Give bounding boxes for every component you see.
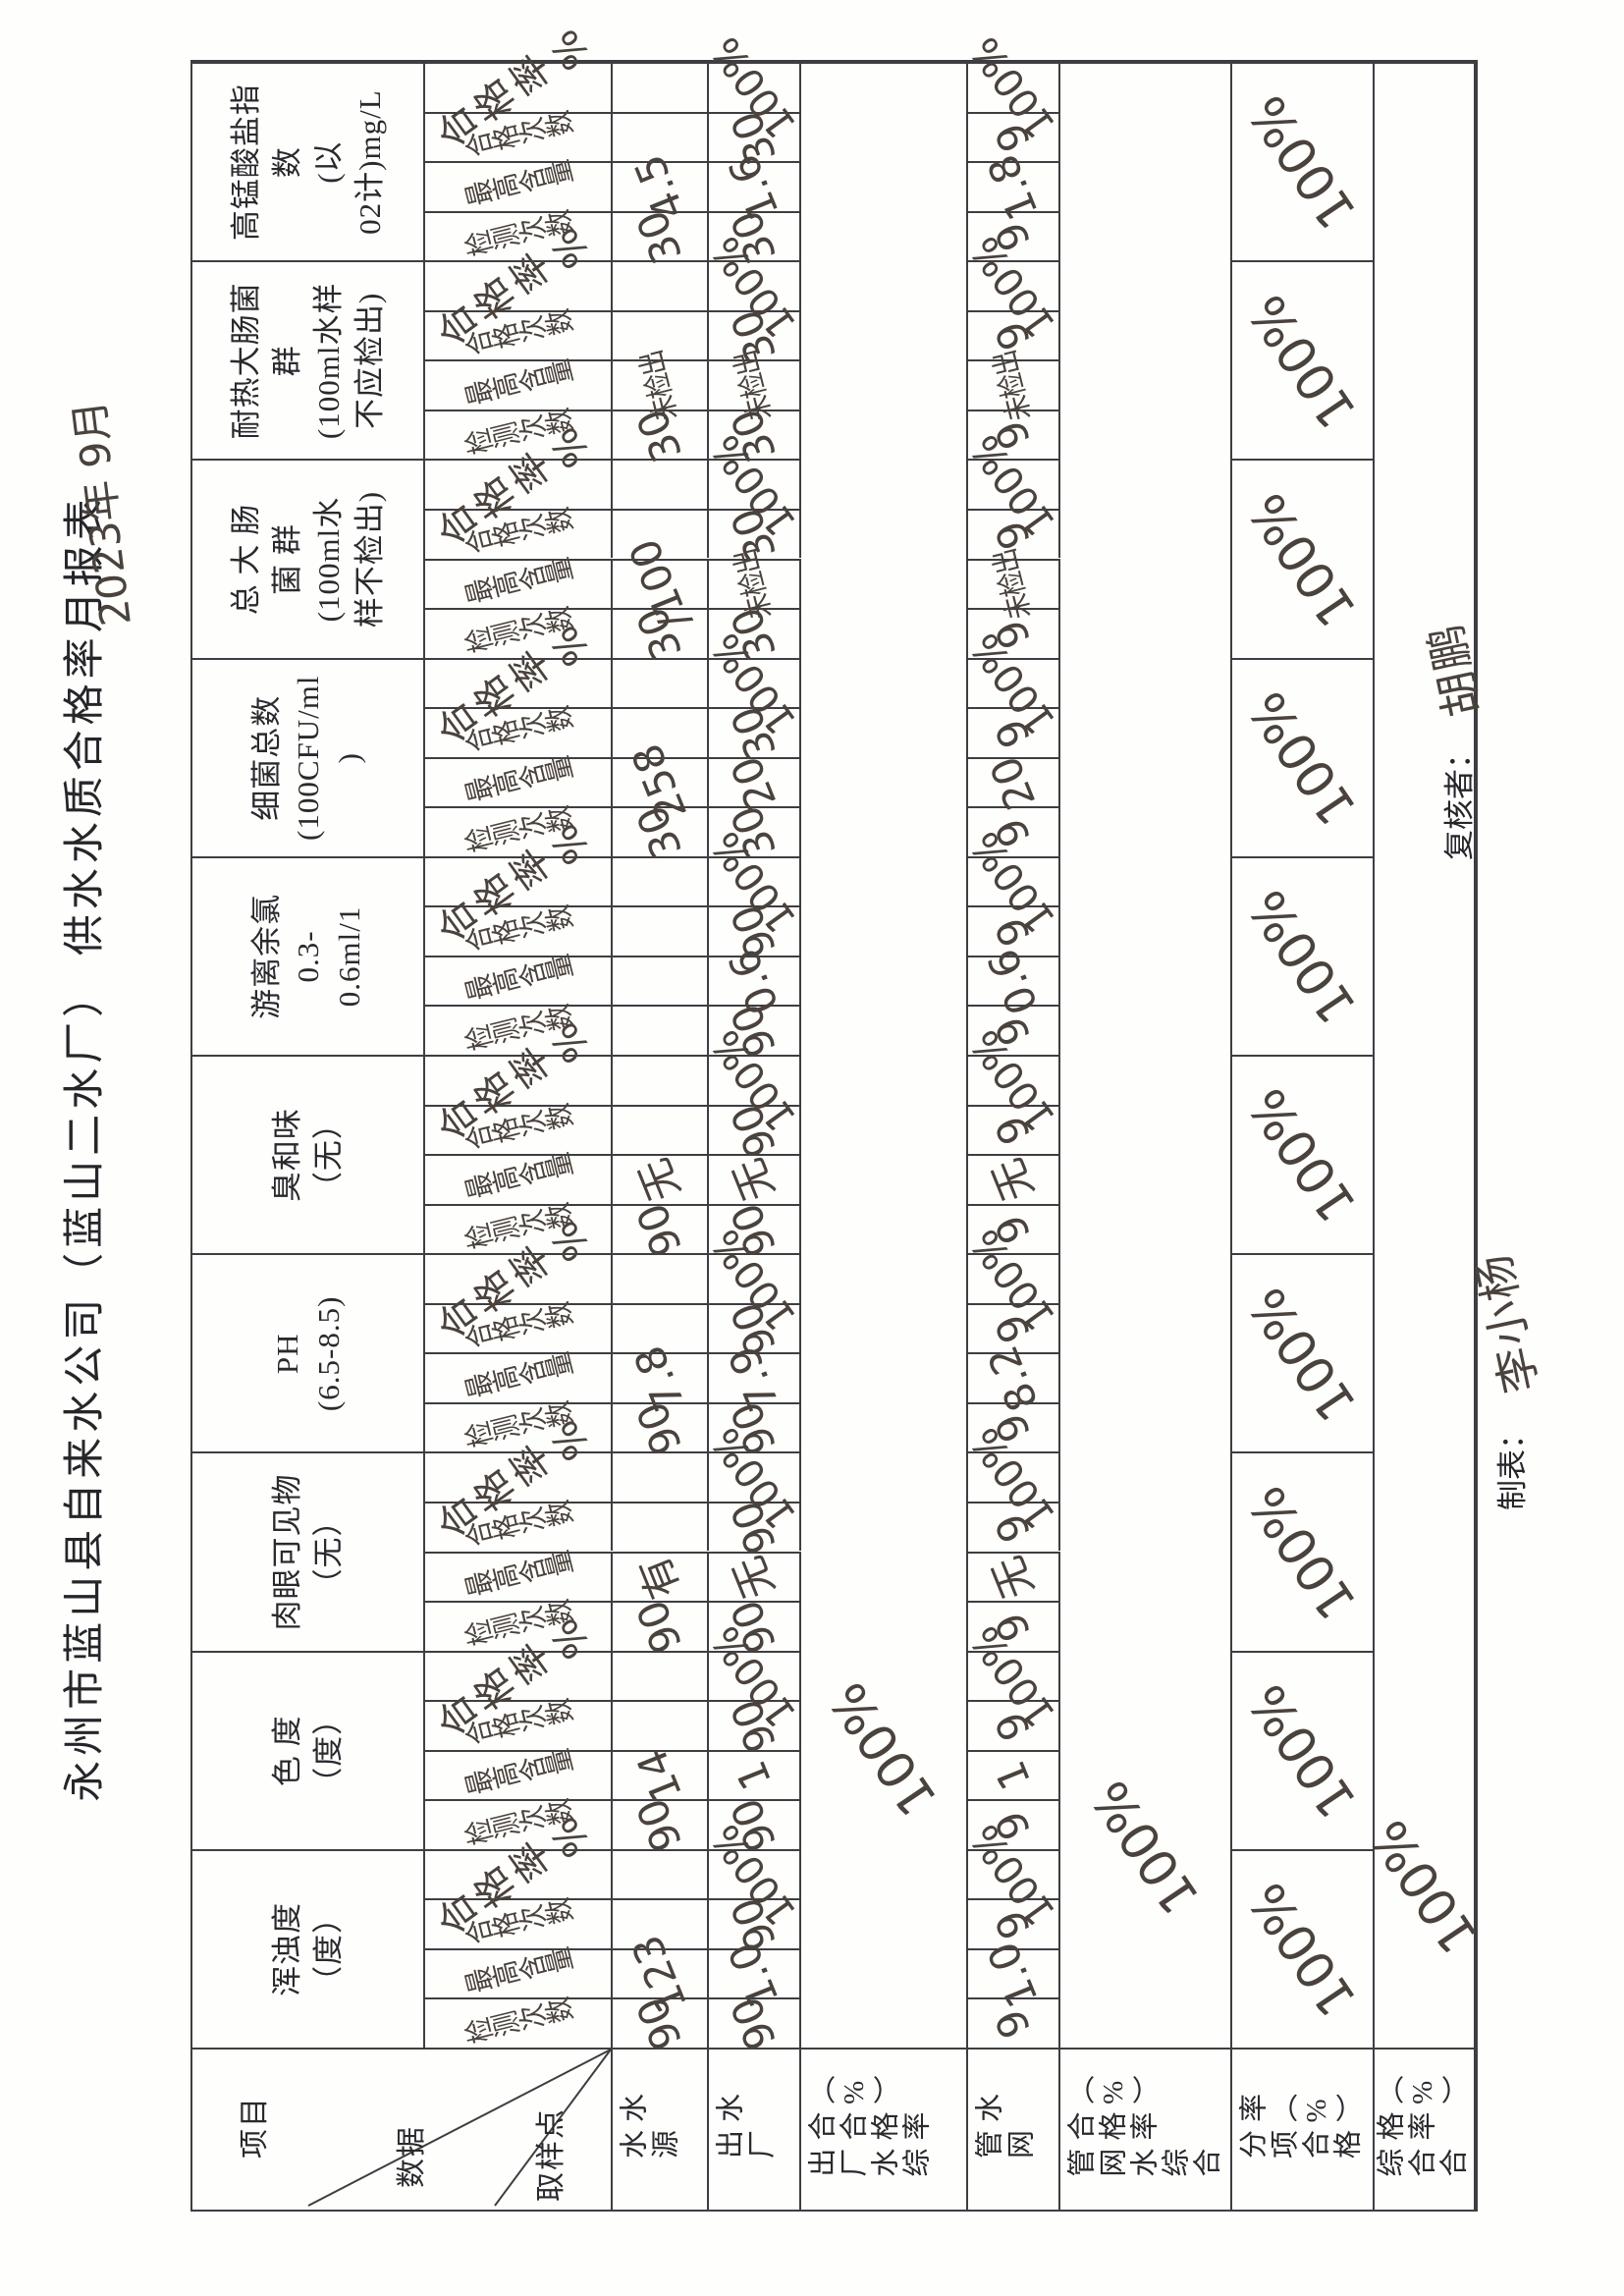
maker-label: 制表： [1495,1419,1530,1510]
column-header-3: PH (6.5-8.5) [192,1253,425,1451]
corner-label-item: 项目 [230,2096,273,2159]
handwritten-value: 最高含量 [461,1948,574,1999]
column-header-0: 浑浊度 （度） [192,1849,425,2048]
source-water-cell [613,856,709,906]
row-label-2: 出厂水综合合格率（%） [801,2048,968,2210]
source-water-cell: 无 [613,1154,709,1204]
handwritten-value: 90 [631,1595,689,1659]
source-water-cell [613,658,709,708]
sub-header: 合格率% [425,1451,613,1502]
network-water-cell: 9 [968,1204,1060,1254]
network-water-cell: 1.0 [968,1948,1060,1998]
handwritten-value: 90 [726,1793,784,1857]
sub-header: 最高含量 [425,1154,613,1204]
source-water-cell [613,112,709,162]
item-rate-cell: 100% [1232,1451,1375,1650]
sub-header: 最高含量 [425,161,613,211]
handwritten-value: 100% [1240,1080,1364,1230]
source-water-cell: 14 [613,1750,709,1800]
plant-overall-rate: 100% [822,1673,946,1823]
item-rate-cell: 100% [1232,1849,1375,2048]
sub-header: 最高含量 [425,757,613,807]
source-water-cell [613,1303,709,1353]
row-label-1: 出厂水 [709,2048,801,2210]
handwritten-value: 无 [728,1550,782,1604]
source-water-cell [613,1849,709,1899]
source-water-cell [613,1700,709,1750]
source-water-cell [613,62,709,112]
scanned-report-page: 永州市蓝山县自来水公司（蓝山二水厂） 供水水质合格率月报表 2023年 9月 项… [0,0,1624,2296]
plant-water-cell: 100% [709,658,801,708]
sub-header: 检测次数 [425,608,613,658]
source-water-cell: ∕100 [613,559,709,609]
item-rate-cell: 100% [1232,260,1375,459]
sub-header: 合格率% [425,260,613,310]
plant-water-cell: 100% [709,856,801,906]
handwritten-value: 检测次数 [461,1006,574,1057]
handwritten-value: 最高含量 [461,956,574,1007]
handwritten-value: 检测次数 [461,1800,574,1851]
column-header-1: 色 度 （度） [192,1651,425,1849]
network-water-cell: 1.8 [968,161,1060,211]
network-water-cell: 未检出 [968,359,1060,410]
source-water-cell [613,1105,709,1155]
network-water-cell: 无 [968,1154,1060,1204]
sub-header: 合格率% [425,1055,613,1105]
column-header-2: 肉眼可见物 （无） [192,1451,425,1650]
source-water-cell: 有 [613,1552,709,1602]
network-water-cell: 0.6 [968,956,1060,1006]
row-label-4: 管网水综合合格率（%） [1060,2048,1232,2210]
source-water-cell [613,1055,709,1105]
handwritten-value: 检测次数 [461,807,574,858]
reviewer-label: 复核者： [1442,738,1477,860]
handwritten-value: 14 [631,1743,689,1807]
sub-header: 合格率% [425,856,613,906]
handwritten-value: 最高含量 [461,360,574,411]
plant-water-cell: 100% [709,1451,801,1502]
source-water-cell [613,1451,709,1502]
network-water-cell: 100% [968,459,1060,509]
plant-water-cell: 100% [709,1651,801,1701]
reviewer-signature: 胡鹏 [1423,620,1487,721]
plant-water-cell: 100% [709,1849,801,1899]
sub-header: 检测次数 [425,211,613,261]
plant-water-cell: 100% [709,62,801,112]
handwritten-value: 90 [726,1595,784,1659]
network-overall-rate-cell: 100% [1060,62,1232,2048]
source-water-cell: 未检出 [613,359,709,410]
sub-header: 最高含量 [425,359,613,410]
sub-header: 检测次数 [425,1997,613,2048]
plant-water-cell: 100% [709,459,801,509]
sub-header: 合格率% [425,1651,613,1701]
column-header-7: 总 大 肠 菌 群 (100ml水 样不检出) [192,459,425,657]
network-water-cell: 未检出 [968,559,1060,609]
plant-water-cell: 无 [709,1552,801,1602]
report-sheet: 永州市蓝山县自来水公司（蓝山二水厂） 供水水质合格率月报表 2023年 9月 项… [0,0,1624,2296]
handwritten-value: 90 [726,1197,784,1261]
source-water-cell: 90 [613,1601,709,1651]
source-water-cell: 4.5 [613,161,709,211]
plant-water-cell: 7.9 [709,1352,801,1402]
handwritten-value: 20 [985,750,1043,814]
overall-rate-cell: 100% [1375,62,1476,2048]
sub-header: 合格率% [425,459,613,509]
handwritten-value: 100% [1240,1875,1364,2024]
plant-water-cell: 90 [709,1204,801,1254]
source-water-cell [613,459,709,509]
column-header-5: 游离余氯 0.3- 0.6ml/1 [192,856,425,1055]
handwritten-value: 最高含量 [461,757,574,808]
sub-header: 合格率% [425,658,613,708]
handwritten-value: 100% [1240,1477,1364,1626]
maker-line: 制表： 李小杨 [1485,1252,1532,1510]
source-water-cell: 7.8 [613,1352,709,1402]
handwritten-value: 最高含量 [461,1353,574,1404]
handwritten-value: 9 [990,812,1038,852]
handwritten-value: 9 [990,1408,1038,1449]
network-overall-rate: 100% [1083,1772,1207,1921]
sub-header: 检测次数 [425,1601,613,1651]
plant-water-cell: 1.0 [709,1948,801,1998]
column-header-9: 高锰酸盐指 数 (以 02计)mg/L [192,62,425,260]
handwritten-value: 无 [633,1153,687,1207]
plant-water-cell: 90 [709,1601,801,1651]
handwritten-value: 9 [990,1210,1038,1250]
network-water-cell: 100% [968,62,1060,112]
handwritten-value: 检测次数 [461,410,574,461]
sub-header: 最高含量 [425,559,613,609]
network-water-cell: 100% [968,1055,1060,1105]
network-water-cell: 9 [968,806,1060,856]
source-water-cell [613,310,709,360]
handwritten-value: 1 [731,1756,779,1796]
plant-water-cell: 20 [709,757,801,807]
network-water-cell: 100% [968,260,1060,310]
plant-water-cell: 0.6 [709,956,801,1006]
item-rate-cell: 100% [1232,658,1375,856]
network-water-cell: 100% [968,1253,1060,1303]
network-water-cell: 100% [968,1451,1060,1502]
handwritten-value: 最高含量 [461,559,574,610]
handwritten-value: 检测次数 [461,608,574,659]
item-rate-cell: 100% [1232,459,1375,657]
sub-header: 检测次数 [425,1799,613,1849]
corner-label-data: 数据 [387,2125,430,2188]
overall-rate: 100% [1362,1811,1486,1960]
row-label-6: 综合合格率（%） [1375,2048,1476,2210]
maker-signature: 李小杨 [1471,1249,1544,1396]
sub-header: 合格率% [425,1849,613,1899]
item-rate-cell: 100% [1232,1651,1375,1849]
source-water-cell [613,509,709,559]
network-water-cell: 9 [968,1601,1060,1651]
source-water-cell [613,1898,709,1948]
plant-water-cell: 90 [709,1799,801,1849]
column-header-4: 臭和味 （无） [192,1055,425,1253]
handwritten-value: 无 [987,1550,1041,1604]
network-water-cell: 100% [968,1651,1060,1701]
source-water-cell [613,1005,709,1055]
handwritten-value: 100% [1240,484,1364,633]
plant-water-cell: 30 [709,806,801,856]
sub-header: 检测次数 [425,806,613,856]
source-water-cell: 123 [613,1948,709,1998]
plant-water-cell: 未检出 [709,359,801,410]
handwritten-value: 100% [1240,87,1364,237]
handwritten-value: 检测次数 [461,211,574,262]
plant-overall-rate-cell: 100% [801,62,968,2048]
network-water-cell: 1 [968,1750,1060,1800]
column-header-8: 耐热大肠菌 群 (100ml水样 不应检出) [192,260,425,459]
network-water-cell: 9 [968,1799,1060,1849]
source-water-cell [613,1502,709,1552]
handwritten-value: 100% [1240,286,1364,435]
column-header-6: 细菌总数 (100CFU/ml ) [192,658,425,856]
sub-header: 合格率% [425,62,613,112]
corner-label-sampling: 取样点 [526,2107,569,2202]
source-water-cell [613,260,709,310]
row-label-3: 管网水 [968,2048,1060,2210]
source-water-cell [613,1253,709,1303]
sub-header: 最高含量 [425,1552,613,1602]
source-water-cell [613,1651,709,1701]
network-water-cell: 8.2 [968,1352,1060,1402]
item-rate-cell: 100% [1232,62,1375,260]
handwritten-value: 90 [631,1197,689,1261]
plant-water-cell: 未检出 [709,559,801,609]
sub-header: 最高含量 [425,1750,613,1800]
item-rate-cell: 100% [1232,1055,1375,1253]
network-water-cell: 100% [968,1849,1060,1899]
handwritten-value: 无 [987,1153,1041,1207]
plant-water-cell: 无 [709,1154,801,1204]
handwritten-value: 100% [1240,1676,1364,1826]
handwritten-value: 9 [990,217,1038,257]
network-water-cell: 20 [968,757,1060,807]
handwritten-value: 检测次数 [461,1402,574,1453]
plant-water-cell: 100% [709,1055,801,1105]
sub-header: 最高含量 [425,1948,613,1998]
source-water-cell: 258 [613,757,709,807]
handwritten-value: 检测次数 [461,1204,574,1255]
handwritten-value: 9 [990,1805,1038,1845]
handwritten-value: 无 [728,1153,782,1207]
handwritten-value: 有 [633,1550,687,1604]
sub-header: 最高含量 [425,956,613,1006]
item-rate-cell: 100% [1232,1253,1375,1451]
handwritten-value: 100% [1240,882,1364,1031]
source-water-cell: 90 [613,1799,709,1849]
handwritten-value: 100% [1240,1279,1364,1428]
handwritten-value: 最高含量 [461,161,574,212]
page-title: 永州市蓝山县自来水公司（蓝山二水厂） 供水水质合格率月报表 [51,0,111,2296]
plant-water-cell: 100% [709,1253,801,1303]
corner-header-cell: 项目 数据 取样点 [192,2048,613,2210]
plant-water-cell: 100% [709,260,801,310]
sub-header: 合格率% [425,1253,613,1303]
sub-header: 检测次数 [425,410,613,460]
source-water-cell [613,905,709,956]
handwritten-value: 最高含量 [461,1750,574,1801]
handwritten-value: 检测次数 [461,1998,574,2050]
row-label-5: 分项合格率（%） [1232,2048,1375,2210]
handwritten-value: 9 [990,1607,1038,1647]
sub-header: 检测次数 [425,1402,613,1452]
source-water-cell [613,956,709,1006]
row-label-0: 水源水 [613,2048,709,2210]
network-water-cell: 100% [968,856,1060,906]
reviewer-line: 复核者： 胡鹏 [1432,623,1479,860]
sub-header: 检测次数 [425,1005,613,1055]
plant-water-cell: 1.6 [709,161,801,211]
handwritten-value: 100% [1240,683,1364,833]
plant-water-cell: 1 [709,1750,801,1800]
handwritten-value: 1 [990,1756,1038,1796]
handwritten-value: 检测次数 [461,1601,574,1652]
source-water-cell [613,707,709,757]
source-water-cell: 90 [613,1204,709,1254]
item-rate-cell: 100% [1232,856,1375,1055]
sub-header: 检测次数 [425,1204,613,1254]
network-water-cell: 100% [968,658,1060,708]
network-water-cell: 无 [968,1552,1060,1602]
handwritten-value: 最高含量 [461,1552,574,1603]
sub-header: 最高含量 [425,1352,613,1402]
handwritten-value: 最高含量 [461,1154,574,1205]
